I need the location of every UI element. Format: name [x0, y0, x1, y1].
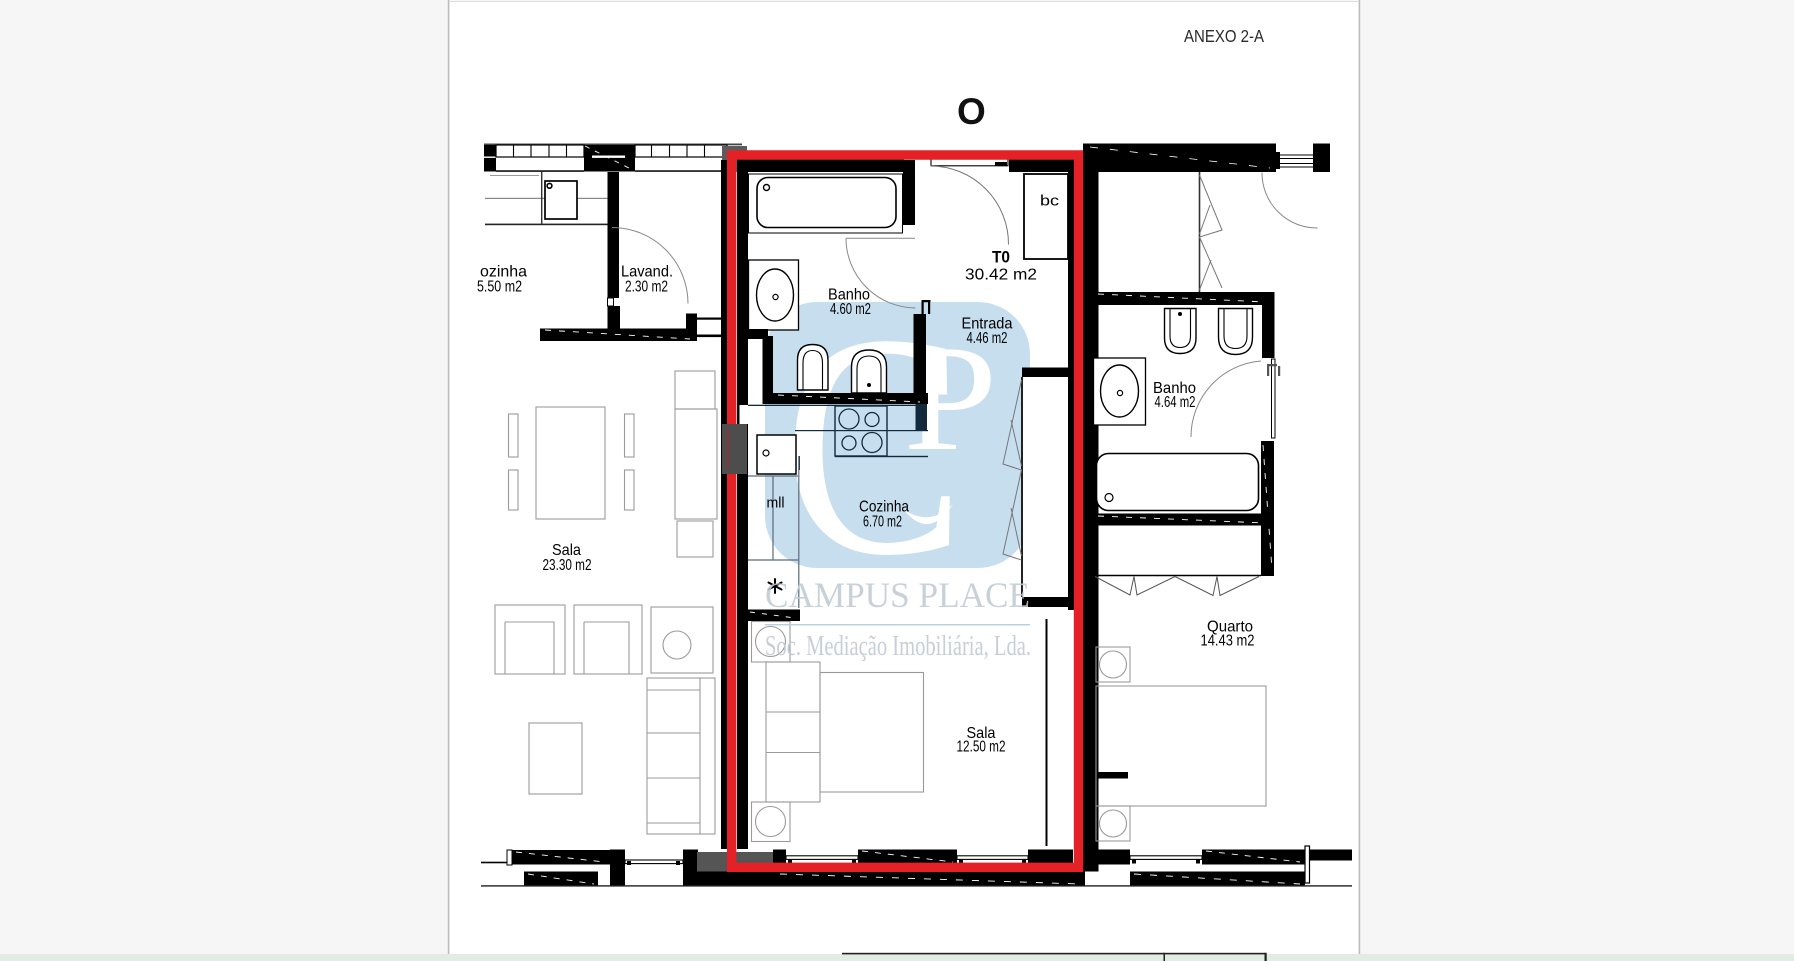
svg-text:CAMPUS PLACE: CAMPUS PLACE — [765, 575, 1030, 615]
svg-text:12.50 m2: 12.50 m2 — [957, 738, 1006, 755]
svg-text:T0: T0 — [992, 249, 1010, 267]
svg-text:23.30 m2: 23.30 m2 — [543, 557, 592, 574]
svg-text:4.64 m2: 4.64 m2 — [1155, 394, 1196, 411]
svg-text:2.30 m2: 2.30 m2 — [625, 279, 668, 296]
svg-text:5.50 m2: 5.50 m2 — [477, 279, 522, 296]
svg-text:4.46 m2: 4.46 m2 — [967, 330, 1008, 347]
svg-text:ANEXO 2-A: ANEXO 2-A — [1184, 26, 1264, 46]
svg-text:14.43 m2: 14.43 m2 — [1201, 632, 1255, 649]
svg-text:Soc. Mediação Imobiliária, Lda: Soc. Mediação Imobiliária, Lda. — [765, 630, 1031, 662]
svg-text:6.70 m2: 6.70 m2 — [863, 513, 902, 530]
svg-text:30.42 m2: 30.42 m2 — [965, 267, 1037, 284]
svg-text:bc: bc — [1040, 193, 1060, 210]
svg-text:O: O — [957, 91, 986, 132]
svg-text:4.60 m2: 4.60 m2 — [830, 301, 871, 318]
svg-text:mll: mll — [767, 495, 785, 512]
